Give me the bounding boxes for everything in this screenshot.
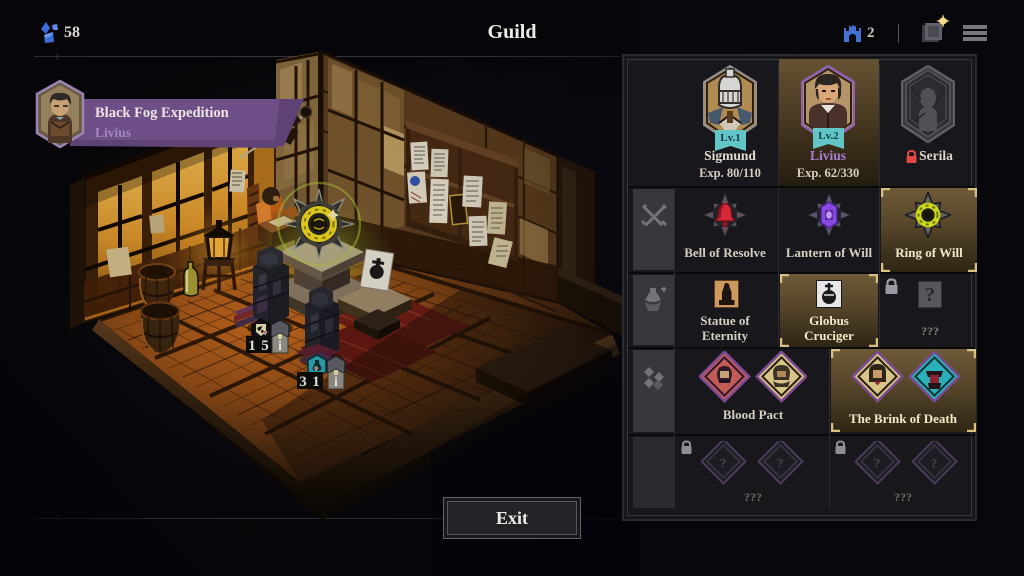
- svg-text:?: ?: [874, 457, 881, 472]
- svg-text:?: ?: [720, 457, 727, 472]
- svg-text:?: ?: [931, 457, 938, 472]
- svg-text:?: ?: [925, 284, 935, 306]
- svg-text:?: ?: [777, 457, 784, 472]
